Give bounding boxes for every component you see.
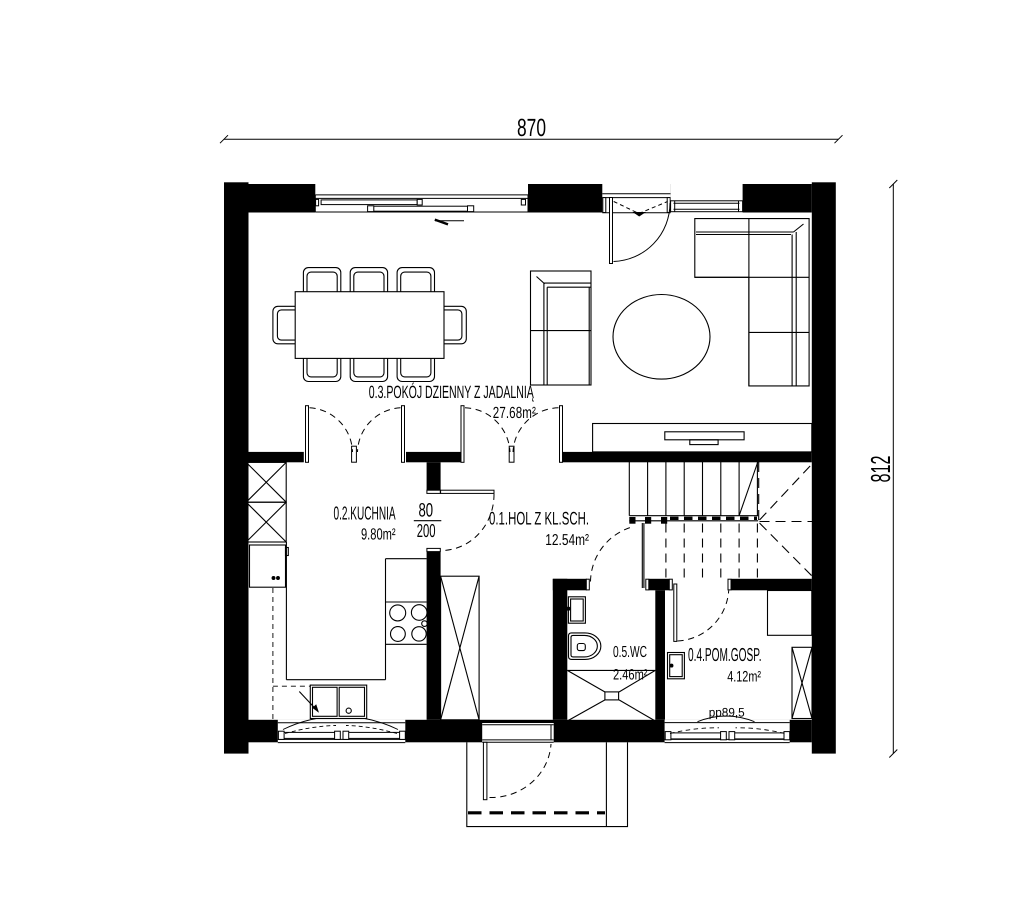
svg-text:870: 870 [517, 113, 546, 142]
svg-text:27.68m²: 27.68m² [493, 406, 536, 423]
svg-text:12.54m²: 12.54m² [545, 530, 589, 549]
svg-text:pp89,5: pp89,5 [709, 706, 745, 720]
svg-text:0.5.WC: 0.5.WC [613, 644, 647, 661]
svg-text:0.4.POM.GOSP.: 0.4.POM.GOSP. [688, 646, 762, 666]
svg-text:0.1.HOL Z KL.SCH.: 0.1.HOL Z KL.SCH. [489, 510, 589, 529]
svg-text:80: 80 [419, 499, 434, 521]
svg-text:9.80m²: 9.80m² [361, 526, 396, 543]
svg-text:2.46m²: 2.46m² [613, 667, 648, 683]
svg-text:200: 200 [417, 522, 436, 542]
svg-text:812: 812 [866, 456, 897, 483]
svg-text:4.12m²: 4.12m² [727, 669, 761, 686]
svg-text:0.2.KUCHNIA: 0.2.KUCHNIA [334, 505, 396, 525]
svg-text:0.3.POKÓJ DZIENNY Z JADALNIĄ: 0.3.POKÓJ DZIENNY Z JADALNIĄ [369, 381, 535, 403]
